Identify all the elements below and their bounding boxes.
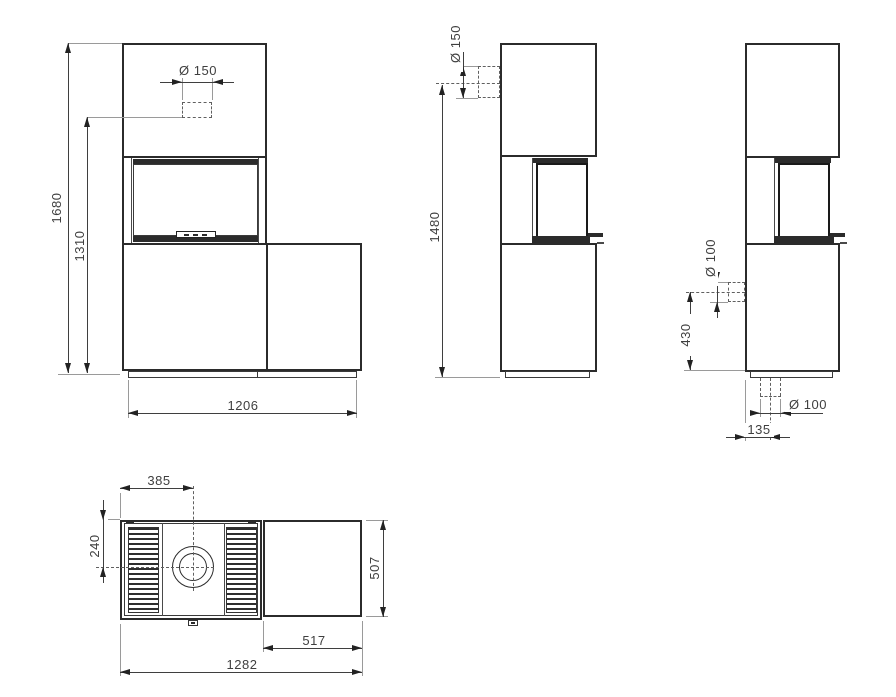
technical-drawing: Ø 150 1680 1310 1206	[0, 0, 896, 697]
top-view: 385 240 507 517	[0, 0, 896, 697]
top-dim-total-width: 1282	[0, 0, 896, 697]
dim-label-total-width: 1282	[219, 658, 265, 672]
